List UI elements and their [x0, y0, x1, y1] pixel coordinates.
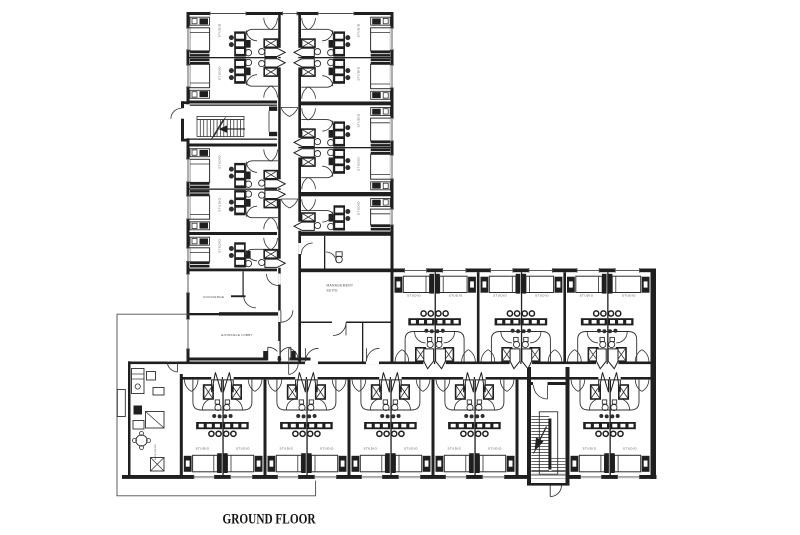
- svg-text:STUDIO: STUDIO: [320, 447, 334, 451]
- svg-text:STUDIO: STUDIO: [218, 197, 222, 211]
- svg-text:STUDIO: STUDIO: [535, 294, 549, 298]
- svg-text:CONCIERGE: CONCIERGE: [203, 295, 224, 299]
- svg-text:STUDIO: STUDIO: [279, 447, 293, 451]
- svg-text:STUDIO: STUDIO: [357, 23, 361, 37]
- svg-text:STUDIO: STUDIO: [407, 294, 421, 298]
- svg-text:STUDIO: STUDIO: [218, 23, 222, 37]
- svg-text:SUITE: SUITE: [327, 289, 338, 293]
- svg-text:STUDIO: STUDIO: [622, 294, 636, 298]
- svg-text:STUDIO: STUDIO: [357, 113, 361, 127]
- svg-text:STUDIO: STUDIO: [218, 239, 222, 253]
- svg-text:MANAGEMENT: MANAGEMENT: [327, 284, 354, 288]
- svg-text:STUDIO: STUDIO: [447, 447, 461, 451]
- svg-text:ENTRANCE LOBBY: ENTRANCE LOBBY: [221, 333, 253, 337]
- svg-text:GROUND FLOOR: GROUND FLOOR: [223, 511, 316, 527]
- svg-text:STUDIO: STUDIO: [236, 447, 250, 451]
- svg-text:STUDIO: STUDIO: [580, 294, 594, 298]
- svg-text:STUDIO: STUDIO: [488, 447, 502, 451]
- svg-text:STUDIO: STUDIO: [404, 447, 418, 451]
- svg-text:STUDIO: STUDIO: [583, 447, 597, 451]
- svg-text:STUDIO: STUDIO: [357, 201, 361, 215]
- svg-text:STUDIO: STUDIO: [357, 66, 361, 80]
- svg-text:STUDIO: STUDIO: [196, 447, 210, 451]
- svg-text:STUDIO: STUDIO: [623, 447, 637, 451]
- svg-text:STUDIO: STUDIO: [218, 66, 222, 80]
- svg-text:STUDIO: STUDIO: [363, 447, 377, 451]
- svg-text:STUDIO: STUDIO: [218, 155, 222, 169]
- svg-text:STUDIO: STUDIO: [357, 157, 361, 171]
- svg-text:STUDIO: STUDIO: [493, 294, 507, 298]
- svg-text:STUDIO: STUDIO: [449, 294, 463, 298]
